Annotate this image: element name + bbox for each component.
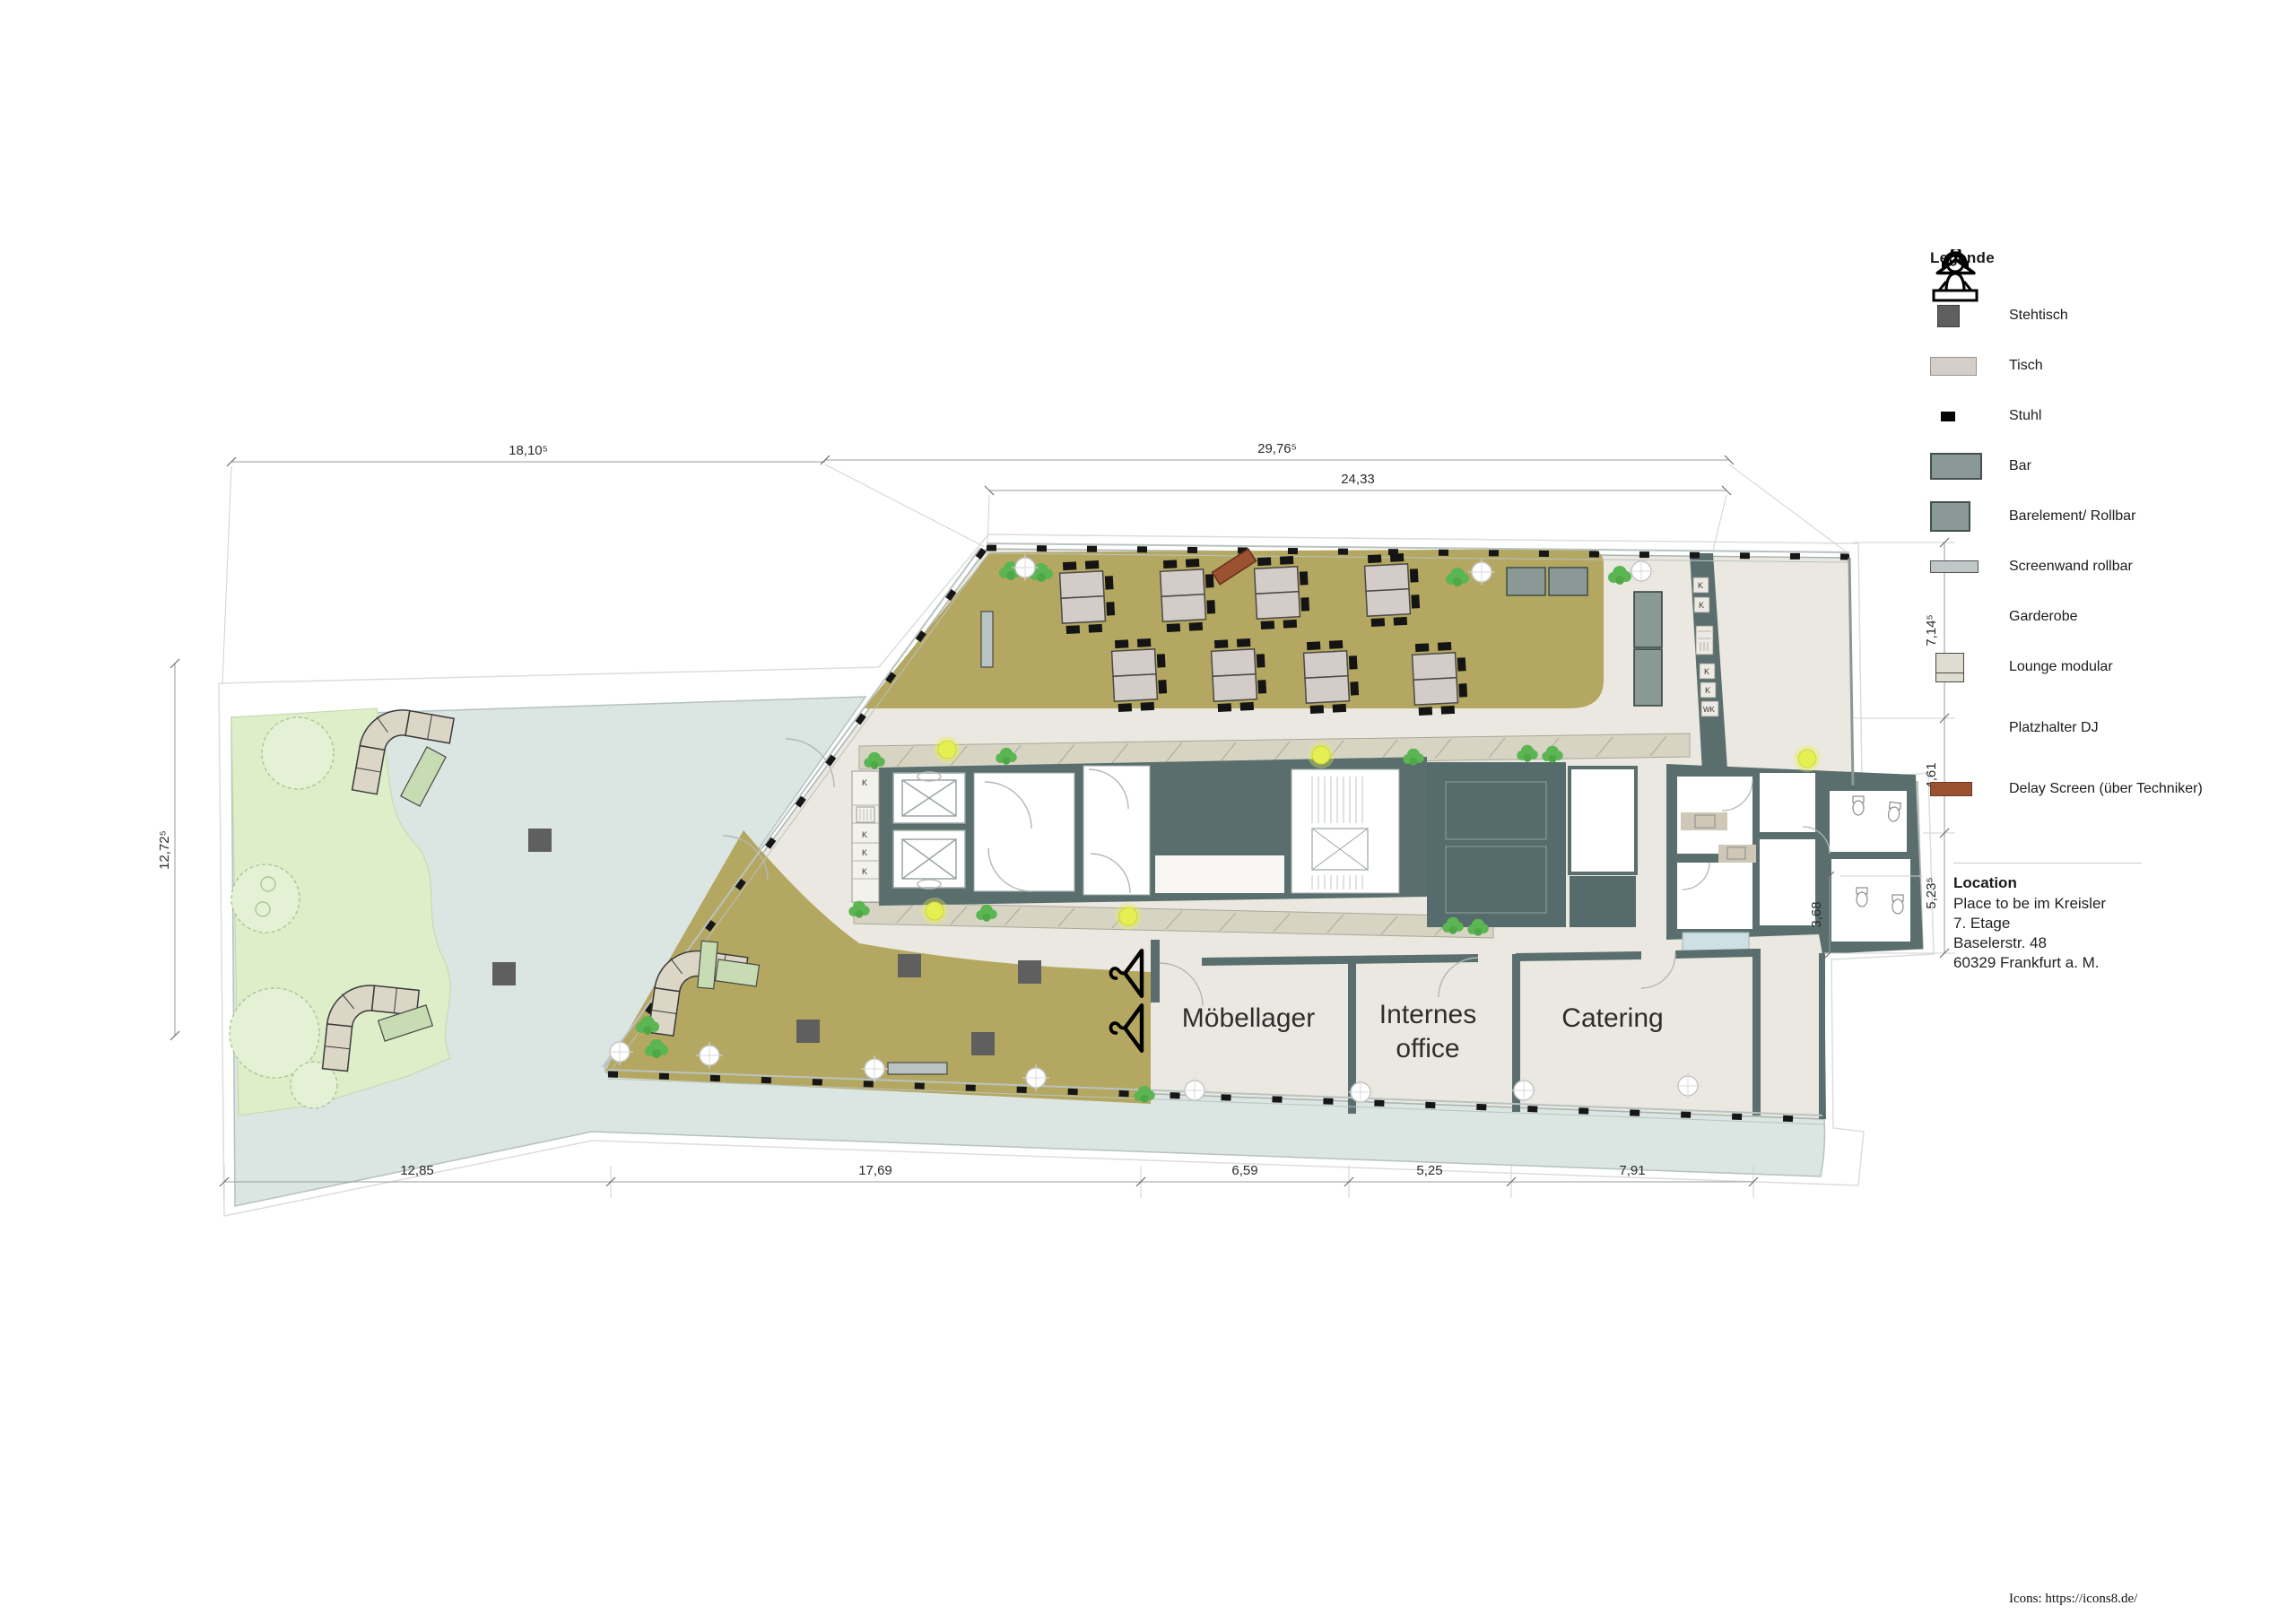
legend-row-lounge: Lounge modular [1930,642,2271,692]
screenwand-rollbar [888,1063,947,1074]
location-line: Baselerstr. 48 [1953,933,2142,953]
corridor [1083,766,1150,895]
core-label: K [1699,601,1704,610]
stehtisch-swatch [1937,305,1960,327]
legend-row-dj: Platzhalter DJ [1930,692,2271,764]
dj-icon [1930,249,1980,305]
dim-label: 17,69 [858,1163,892,1178]
room-label-internes-2: office [1396,1034,1459,1064]
legend: Legende Stehtisch Tisch Stuhl Bar Barele… [1930,249,2271,814]
legend-title: Legende [1930,249,2271,267]
stuhl-swatch [1941,412,1955,421]
legend-label: Screenwand rollbar [2009,559,2133,575]
barelement-swatch [1930,501,1970,532]
stairwell [1291,769,1399,893]
bar [1507,568,1545,595]
bar [1549,568,1587,595]
core-label: K [1704,667,1709,676]
dim-label: 24,33 [1341,472,1375,487]
dim-label: 7,91 [1619,1163,1645,1178]
location-title: Location [1953,874,2142,892]
dim-label: 12,85 [400,1163,434,1178]
core-label: K [1705,686,1710,695]
legend-label: Stuhl [2009,408,2041,424]
dim-label: 18,10⁵ [509,443,548,458]
lounge-swatch [1935,653,1964,682]
legend-row-screenwand: Screenwand rollbar [1930,542,2271,592]
room-label-internes-1: Internes [1379,1000,1476,1030]
technic-block [1427,762,1566,927]
core-label: WK [1703,706,1716,714]
vestibule [974,773,1074,891]
technic-block-small [1570,876,1636,927]
legend-label: Barelement/ Rollbar [2009,508,2135,525]
legend-label: Delay Screen (über Techniker) [2009,781,2203,797]
room-label-catering: Catering [1561,1003,1663,1034]
screenwand-rollbar [981,612,993,667]
core-label: K [1698,581,1703,590]
legend-label: Lounge modular [2009,659,2113,675]
wc-block [1666,764,1923,954]
room-label-moebellager: Möbellager [1182,1003,1315,1034]
core-room-light [1155,855,1284,893]
core-label: K [862,867,867,876]
legend-label: Tisch [2009,358,2043,374]
legend-row-barelement: Barelement/ Rollbar [1930,491,2271,542]
location-line: Place to be im Kreisler [1953,894,2142,914]
core-room-white [1570,768,1636,873]
dim-label: 5,25 [1416,1163,1442,1178]
tisch-swatch [1930,357,1977,376]
footer-credit: Icons: https://icons8.de/ [2009,1592,2137,1607]
core-label: K [862,778,867,787]
barelement [1634,592,1662,647]
dim-label: 12,72⁵ [157,830,172,870]
legend-label: Platzhalter DJ [2009,720,2099,736]
location-line: 60329 Frankfurt a. M. [1953,953,2142,973]
location-block: Location Place to be im Kreisler 7. Etag… [1953,863,2142,973]
delay-screen-swatch [1930,782,1972,796]
floorplan-page: K K K K K K K K WK 1 [0,0,2296,1623]
core-label: K [862,848,867,857]
legend-row-garderobe: Garderobe [1930,592,2271,642]
location-line: 7. Etage [1953,914,2142,933]
dim-label: 29,76⁵ [1257,441,1297,456]
legend-row-delay: Delay Screen (über Techniker) [1930,764,2271,814]
legend-label: Stehtisch [2009,308,2068,324]
screenwand-swatch [1930,560,1979,573]
dim-label: 5,23⁵ [1924,877,1939,908]
legend-row-tisch: Tisch [1930,341,2271,391]
legend-row-bar: Bar [1930,441,2271,491]
elevator-shafts [893,772,965,889]
bar-swatch [1930,453,1982,480]
legend-label: Garderobe [2009,609,2078,625]
legend-row-stuhl: Stuhl [1930,391,2271,441]
core-label: K [862,830,867,839]
barelement [1634,649,1662,706]
dim-label: 6,59 [1231,1163,1257,1178]
legend-row-stehtisch: Stehtisch [1930,291,2271,341]
legend-label: Bar [2009,458,2031,474]
dim-label: 3,68 [1809,901,1824,927]
